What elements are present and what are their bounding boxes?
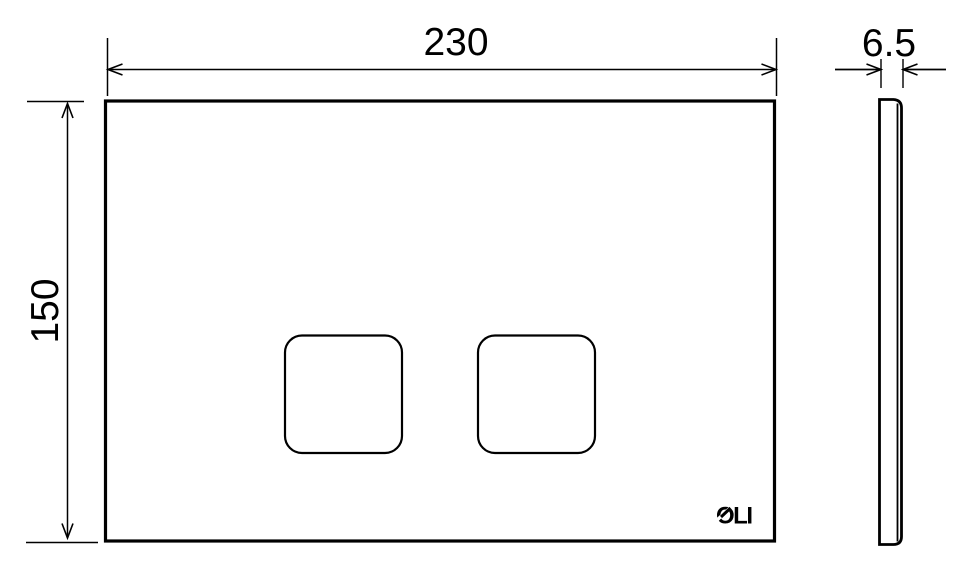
width-dimension-label: 230 — [423, 21, 488, 64]
flush-button-left — [285, 336, 402, 454]
height-dimension-label: 150 — [24, 278, 67, 343]
oli-logo: OLI — [716, 503, 753, 530]
drawing-svg: 230 150 OLI — [0, 0, 973, 577]
thickness-dimension-label: 6.5 — [862, 22, 916, 65]
side-view — [880, 100, 902, 545]
front-view — [106, 101, 775, 541]
flush-plate-technical-drawing: 230 150 OLI — [0, 0, 973, 577]
plate-outline — [106, 101, 775, 541]
flush-button-right — [478, 336, 595, 454]
